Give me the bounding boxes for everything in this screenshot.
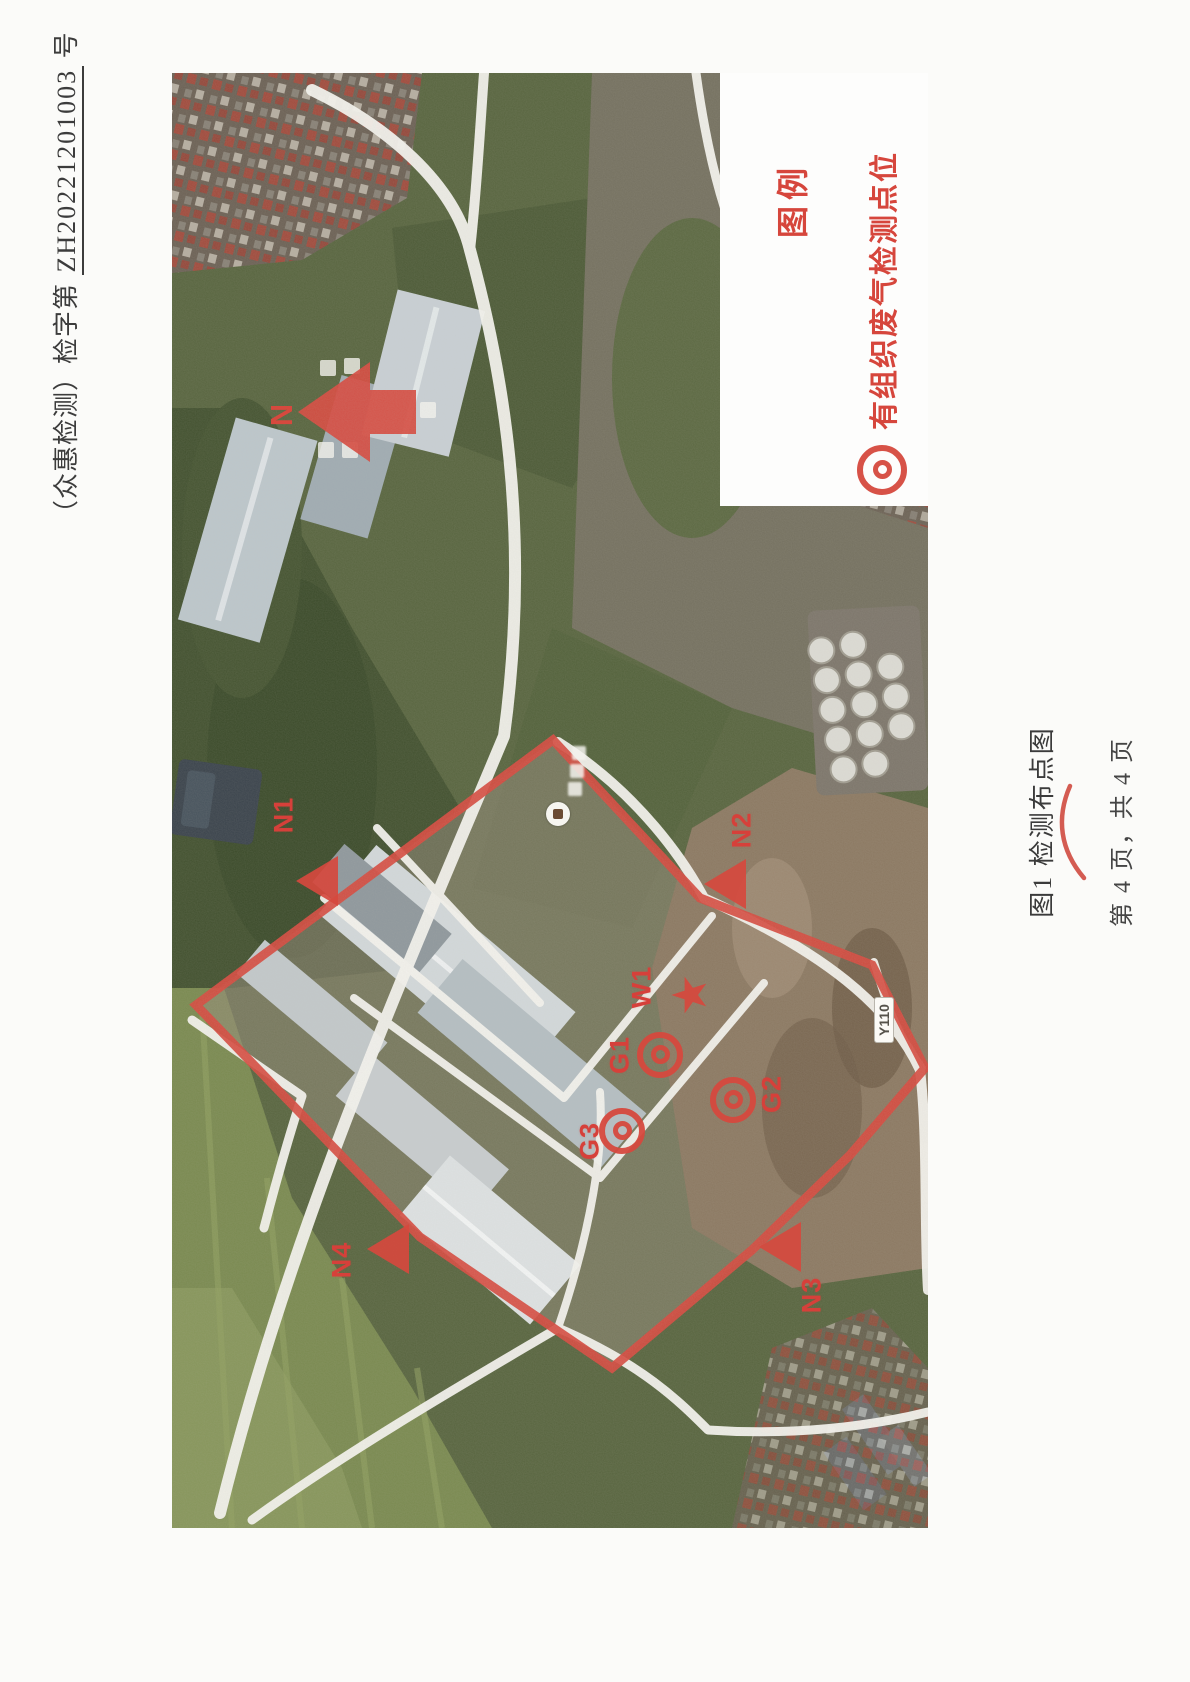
marker-label-g3: G3 (575, 1122, 606, 1160)
report-number-header: （众惠检测）检字第 ZH20221201003 号 (46, 31, 83, 526)
north-label: N (264, 404, 300, 426)
marker-label-g2: G2 (757, 1075, 788, 1113)
marker-label-g1: G1 (605, 1036, 636, 1074)
rotated-landscape-content: （众惠检测）检字第 ZH20221201003 号 (0, 0, 1190, 1682)
road-label-badge: Y110 (874, 997, 894, 1043)
marker-label-n4: N4 (327, 1242, 358, 1279)
legend-title: 图例 (768, 108, 814, 238)
page-number: 第 4 页，共 4 页 (1102, 710, 1137, 954)
double-circle-icon (637, 1032, 683, 1078)
legend-panel: 图例 有组织废气检测点位 ★ 废水检测点位 噪声检测点位 (720, 73, 928, 506)
report-number-suffix: 号 (52, 31, 81, 58)
marker-label-n3: N3 (797, 1277, 828, 1314)
triangle-icon (367, 1224, 409, 1274)
legend-item-exhaust: 有组织废气检测点位 (856, 151, 908, 496)
marker-label-n1: N1 (269, 797, 300, 834)
double-circle-icon (856, 444, 908, 496)
poi-marker-icon (546, 802, 570, 826)
triangle-icon (296, 856, 338, 906)
legend-item-label: 有组织废气检测点位 (861, 151, 903, 430)
double-circle-icon (599, 1108, 645, 1154)
red-pen-mark (1048, 780, 1096, 884)
triangle-icon (704, 859, 746, 909)
report-number-value: ZH20221201003 (52, 66, 84, 276)
marker-label-w1: W1 (627, 966, 658, 1009)
satellite-map-figure: N Y110 N1 N2 N3 N4 G1 G2 (172, 73, 928, 1528)
report-number-prefix: （众惠检测）检字第 (52, 283, 81, 526)
scanned-report-page: （众惠检测）检字第 ZH20221201003 号 (0, 0, 1190, 1682)
star-icon: ★ (666, 973, 714, 1016)
marker-label-n2: N2 (727, 812, 758, 849)
double-circle-icon (710, 1077, 756, 1123)
triangle-icon (759, 1222, 801, 1272)
